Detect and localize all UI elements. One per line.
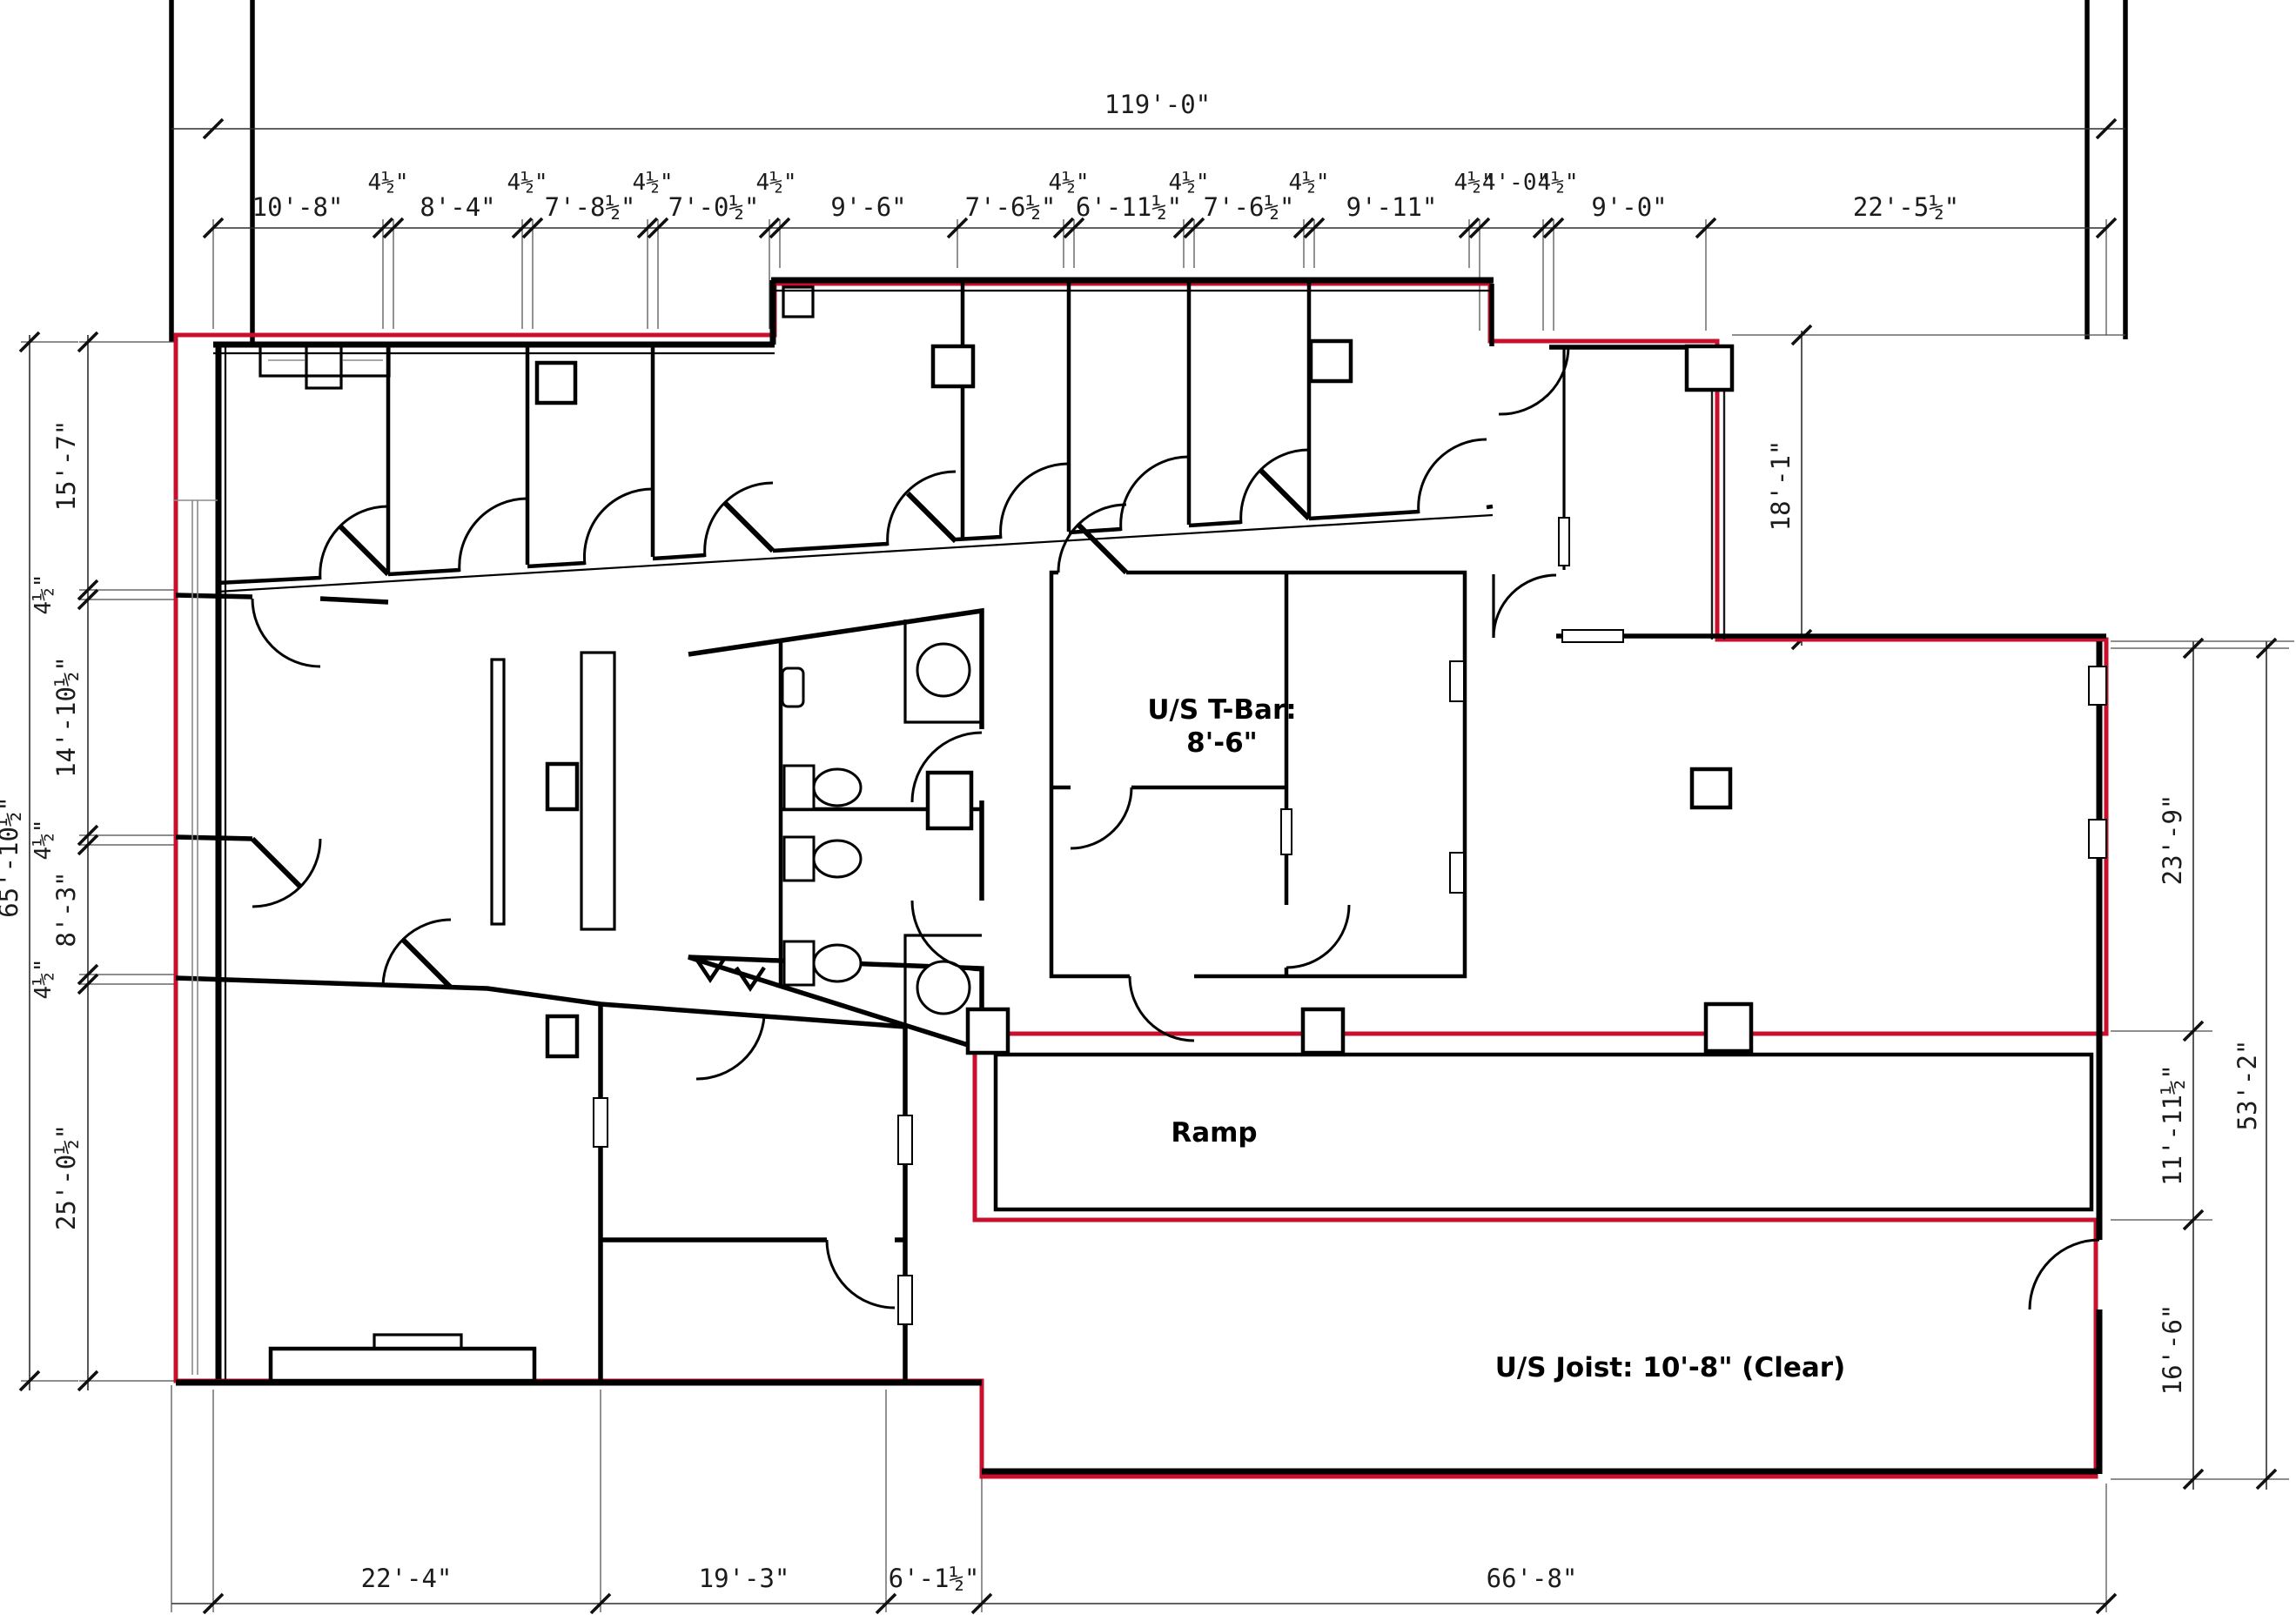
ramp-label: Ramp [1171,1117,1257,1149]
dim-top-chain: 10'-8" 4½" 8'-4" 4½" 7'-8½" 4½" 7'-0½" 4… [204,170,2116,335]
tbar-label-line2: 8'-6" [1186,727,1258,759]
dim-bottom-0: 22'-4" [361,1564,453,1593]
dim-top-11: 6'-11½" [1076,192,1182,222]
walls-layer [176,280,2106,1474]
toilet-fixture [784,766,861,809]
floor-plan-drawing: 119'-0" 10'-8" 4½" 8'-4" 4½" 7'-8½" 4½" … [0,0,2296,1621]
dim-bottom-1: 19'-3" [699,1564,790,1593]
dim-right-overall: 53'-2" [2232,1040,2262,1131]
dim-top-8: 9'-6" [830,192,906,222]
dim-left-3: 4½" [30,820,57,861]
dim-left-overall: 65'-10½" [0,796,23,918]
toilet-fixture [784,837,861,881]
dim-left-4: 8'-3" [51,871,81,947]
grid-lines [171,0,2125,345]
dim-bottom-2: 6'-1½" [889,1564,980,1593]
dim-top-overall-text: 119'-0" [1104,90,1211,119]
dim-top-overall: 119'-0" [171,90,2125,138]
dim-top-5: 4½" [633,170,674,196]
dim-top-0: 10'-8" [252,192,344,222]
dim-bottom-3: 66'-8" [1487,1564,1578,1593]
dim-right-2: 16'-6" [2158,1304,2187,1396]
dim-top-19: 9'-0" [1591,192,1667,222]
dim-top-4: 7'-8½" [545,192,636,222]
dim-top-6: 7'-0½" [668,192,760,222]
dim-right-1: 11'-11½" [2158,1064,2187,1186]
dim-left-6: 25'-0½" [51,1124,81,1230]
ramp: Ramp [996,1055,2091,1209]
dim-top-15: 9'-11" [1346,192,1438,222]
dim-top-13: 7'-6½" [1204,192,1295,222]
dim-bottom-chain: 22'-4" 19'-3" 6'-1½" 66'-8" [171,1385,2116,1613]
dim-left-0: 15'-7" [51,420,81,512]
tbar-label-line1: U/S T-Bar: [1147,694,1296,726]
dim-top-14: 4½" [1289,170,1330,196]
floor-plan-sheet: 119'-0" 10'-8" 4½" 8'-4" 4½" 7'-8½" 4½" … [0,0,2296,1621]
tbar-room-block [1051,505,1465,1041]
dim-top-20: 22'-5½" [1853,192,1959,222]
cabinet [260,345,389,388]
lease-boundary [176,284,2106,1477]
joist-label: U/S Joist: 10'-8" (Clear) [1495,1352,1846,1383]
dim-top-18: 4½" [1538,170,1579,196]
dim-right-0: 23'-9" [2158,794,2187,886]
dim-right-chain: 23'-9" 11'-11½" 16'-6" 53'-2" [2111,639,2294,1490]
dim-top-1: 4½" [368,170,409,196]
dim-left-2: 14'-10½" [51,656,81,778]
dim-top-7: 4½" [756,170,797,196]
dim-wing-text: 18'-1" [1766,440,1796,532]
dim-left-5: 4½" [30,959,57,1000]
dim-left-chain: 15'-7" 4½" 14'-10½" 4½" 8'-3" 4½" 25'-0½… [0,332,174,1390]
dim-wing: 18'-1" [1732,325,2125,649]
washroom-core [688,611,982,1049]
dim-left-1: 4½" [30,574,57,615]
dim-top-2: 8'-4" [420,192,495,222]
dim-top-9: 7'-6½" [965,192,1057,222]
toilet-fixture [784,941,861,985]
sink-counter [905,620,982,722]
doors-layer [252,346,2106,1324]
dim-top-3: 4½" [507,170,548,196]
